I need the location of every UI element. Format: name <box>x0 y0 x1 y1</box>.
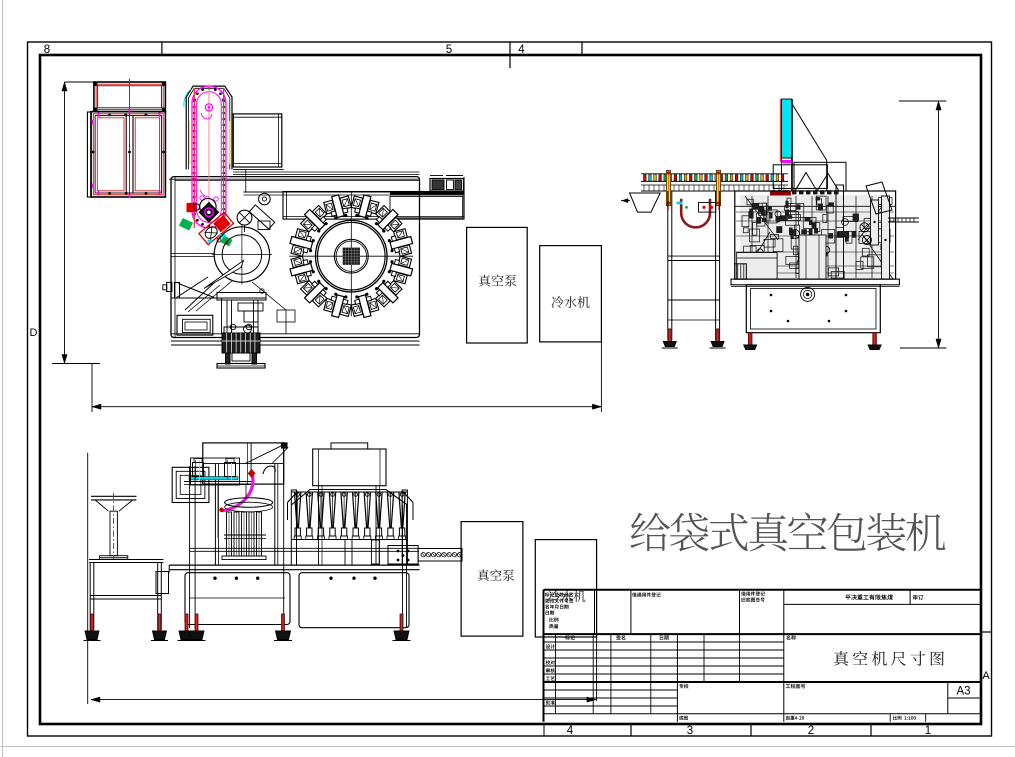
svg-text:D: D <box>30 327 38 339</box>
svg-text:4: 4 <box>518 44 525 56</box>
svg-text:4: 4 <box>567 725 574 737</box>
svg-text:3: 3 <box>687 725 693 737</box>
svg-text:5: 5 <box>446 44 452 56</box>
svg-text:2: 2 <box>808 725 814 737</box>
svg-text:A: A <box>982 670 990 682</box>
svg-text:1: 1 <box>925 725 931 737</box>
svg-text:8: 8 <box>44 44 50 56</box>
svg-text:A3: A3 <box>956 686 970 698</box>
